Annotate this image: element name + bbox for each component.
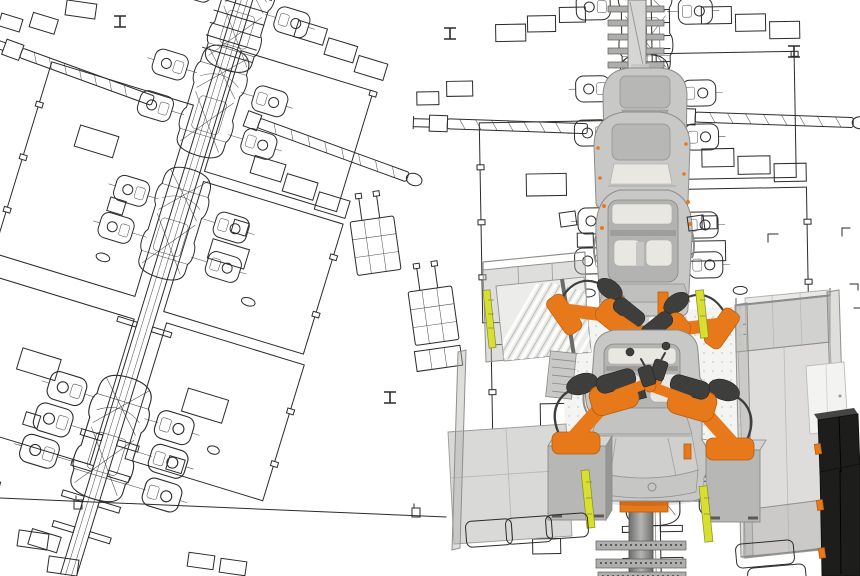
framing-station-3d — [448, 0, 860, 576]
pallet-stand-upper — [346, 189, 401, 275]
cad-comparison-canvas — [0, 0, 860, 576]
conveyor-beam-top — [608, 0, 664, 74]
black-control-cabinets — [814, 408, 860, 576]
small-plate — [17, 530, 49, 550]
section-symbol — [384, 392, 396, 403]
section-symbol — [444, 28, 456, 39]
pallet-stand-lower — [402, 259, 462, 371]
section-symbol — [114, 16, 126, 27]
scene-svg — [0, 0, 860, 576]
small-plate — [65, 0, 97, 19]
cross-reference-line — [0, 498, 446, 517]
wireframe-layout-left — [0, 0, 470, 576]
small-plate — [219, 558, 247, 575]
small-plate — [187, 552, 215, 569]
